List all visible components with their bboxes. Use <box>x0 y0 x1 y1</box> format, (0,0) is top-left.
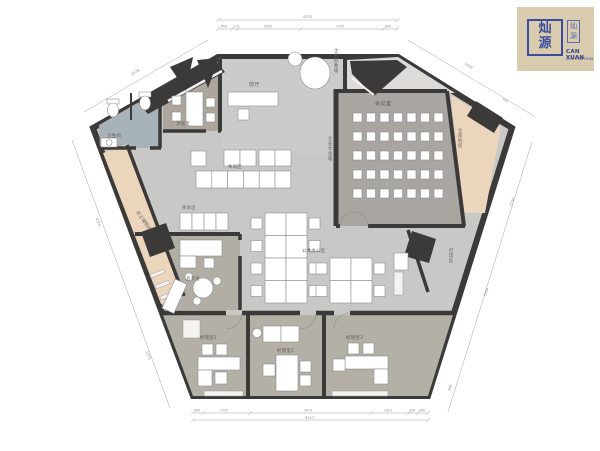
manager3-desk <box>345 356 388 369</box>
logo-seal-icon: 灿源 <box>527 19 563 56</box>
dim-top-seg-1: 270 <box>233 25 239 29</box>
dim-left-b: 1575 <box>145 350 152 360</box>
label-tea-station: 茶水区 <box>182 204 196 211</box>
toilet-1 <box>108 103 119 117</box>
label-open-office: 公共办公区 <box>302 247 326 254</box>
logo-company-subtitle: DECORATION <box>566 56 593 61</box>
manager1-chair <box>215 372 227 384</box>
company-logo: 灿源 灿源 CAN YUAN DECORATION <box>517 7 594 71</box>
manager1-desk <box>198 357 240 370</box>
dim-right-c: 890 <box>447 384 453 391</box>
label-lounge: 休闲区 <box>228 163 242 170</box>
label-negotiation: 洽谈室 <box>176 120 190 127</box>
label-print-zone: 打印区 <box>449 247 454 264</box>
dim-bot-seg-1: 1737 <box>220 409 228 413</box>
dim-top-seg-0: 650 <box>221 25 227 29</box>
seal-char-bottom: 源 <box>538 36 551 51</box>
floor-plan-page: 4552 650 270 2900 3765 650 360 1737 4479… <box>0 0 600 451</box>
reception-desk <box>228 92 278 106</box>
label-warehouse: 仓库机房 <box>458 127 463 149</box>
armchair <box>191 151 206 166</box>
printer <box>394 253 408 270</box>
window-sill-3 <box>332 391 388 396</box>
label-tea-room: 品茶室 <box>186 275 200 282</box>
tea-station-counter <box>180 213 228 230</box>
floor-plan-drawing: 4552 650 270 2900 3765 650 360 1737 4479… <box>0 0 600 451</box>
dim-bot-seg-4: 330 <box>409 409 415 413</box>
tea-room-desk <box>180 240 222 256</box>
cabinet <box>183 320 200 338</box>
label-lobby: 前厅 <box>249 81 260 88</box>
toilet-2 <box>140 96 151 110</box>
dim-right-inner: 726 <box>501 97 508 104</box>
dim-bot-seg-3: 1421 <box>384 409 392 413</box>
seal-char-top: 灿 <box>538 21 551 36</box>
stool <box>253 329 262 338</box>
dim-left-diag: 2478 <box>130 68 141 76</box>
dim-left-a: 4205 <box>95 217 102 227</box>
reception-chair <box>238 109 249 120</box>
print-cabinet <box>394 272 403 295</box>
dim-right-diag: 1929 <box>464 62 474 71</box>
dim-right-b: 5334 <box>483 286 490 297</box>
decor-circle-small <box>288 52 302 66</box>
label-manager-3: 经理室3 <box>346 334 363 341</box>
manager2-desk <box>276 355 298 391</box>
label-culture-wall: 企业文化墙 <box>328 135 333 162</box>
decor-circle-large <box>300 57 330 89</box>
meeting-table <box>186 92 203 126</box>
dim-bot-seg-2: 4479 <box>304 409 312 413</box>
dim-top-seg-2: 2900 <box>264 25 272 29</box>
dim-top-seg-3: 3765 <box>336 25 344 29</box>
dim-top-seg-4: 650 <box>385 25 391 29</box>
dim-bot-seg-0: 360 <box>194 409 200 413</box>
window-sill-1 <box>204 391 243 396</box>
dim-bot-seg-5: 360 <box>419 409 425 413</box>
label-manager-2: 经理室2 <box>277 347 294 354</box>
manager3-chair <box>333 359 345 371</box>
label-image-wall: 企业形象墙 <box>334 47 339 74</box>
label-meeting: 会议室 <box>375 100 392 107</box>
label-restroom: 卫生间 <box>107 132 121 139</box>
logo-side-seal-icon: 灿源 <box>567 20 580 43</box>
label-manager-1: 经理室1 <box>200 334 217 341</box>
sink-basin <box>106 140 112 146</box>
dim-bottom-total: 9517 <box>305 416 314 420</box>
dim-top-total: 4552 <box>303 15 312 19</box>
manager2-chair <box>263 364 275 376</box>
